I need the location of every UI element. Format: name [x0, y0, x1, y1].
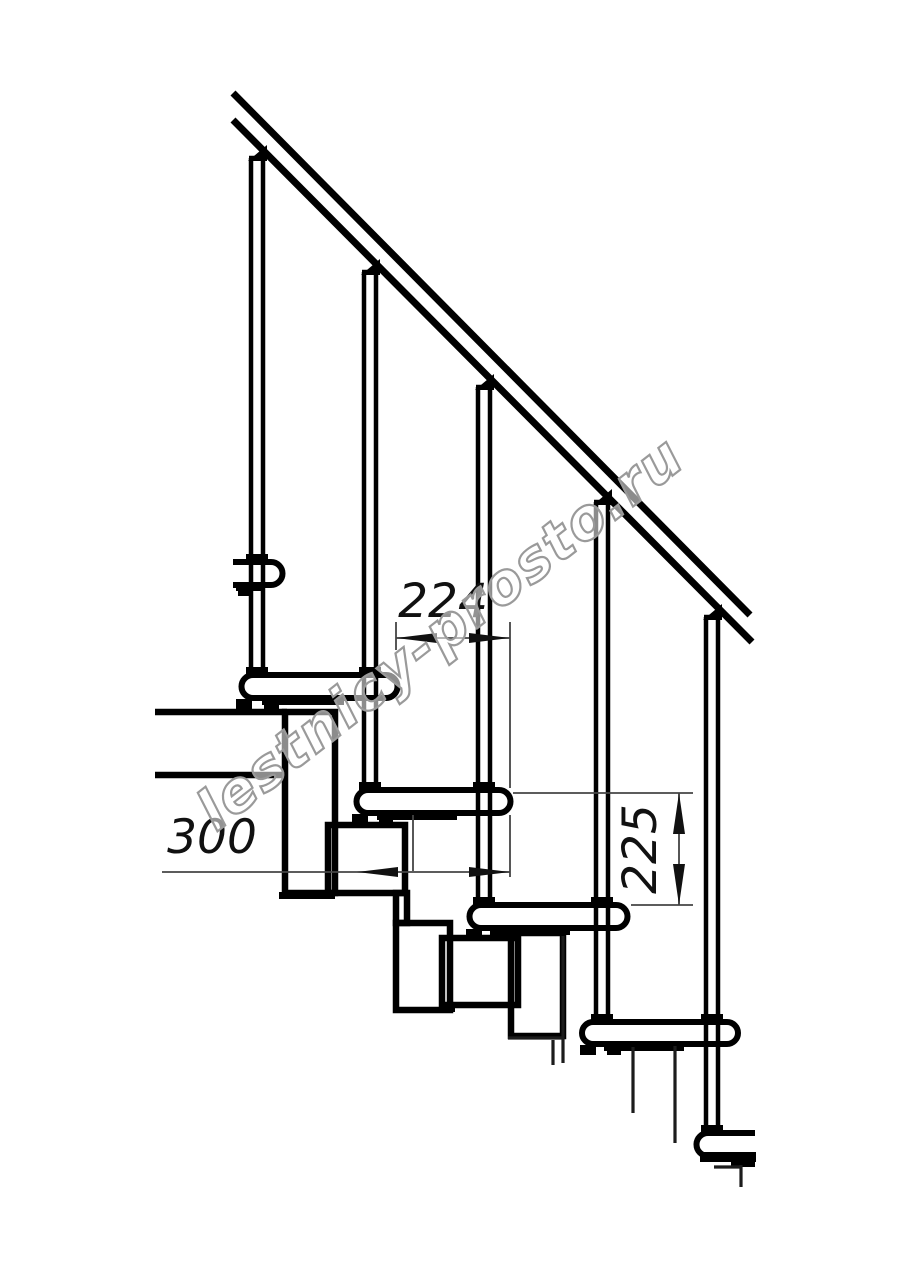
- treads: [233, 562, 755, 1156]
- tread-4: [582, 1022, 738, 1044]
- spine-modules: [155, 712, 563, 1036]
- staircase-side-view-drawing: 224 300 225: [0, 0, 914, 1280]
- spine-module-end-caps: [279, 892, 455, 1012]
- tread-top-partial: [233, 562, 283, 585]
- staircase-technical-drawing-page: 224 300 225: [0, 0, 914, 1280]
- baluster-3: [476, 387, 492, 905]
- dimension-rise: 225: [513, 793, 693, 905]
- rail-baluster-wedges: [248, 145, 722, 620]
- tread-3: [470, 905, 628, 928]
- arrow-left: [357, 867, 398, 877]
- dimension-rise-label: 225: [613, 804, 668, 894]
- arrow-up: [673, 793, 685, 834]
- balusters: [249, 158, 720, 1133]
- baluster-1: [249, 158, 265, 675]
- baluster-4: [594, 502, 610, 1022]
- tread-2: [357, 790, 511, 813]
- arrow-down: [673, 864, 685, 905]
- baluster-5: [704, 617, 720, 1133]
